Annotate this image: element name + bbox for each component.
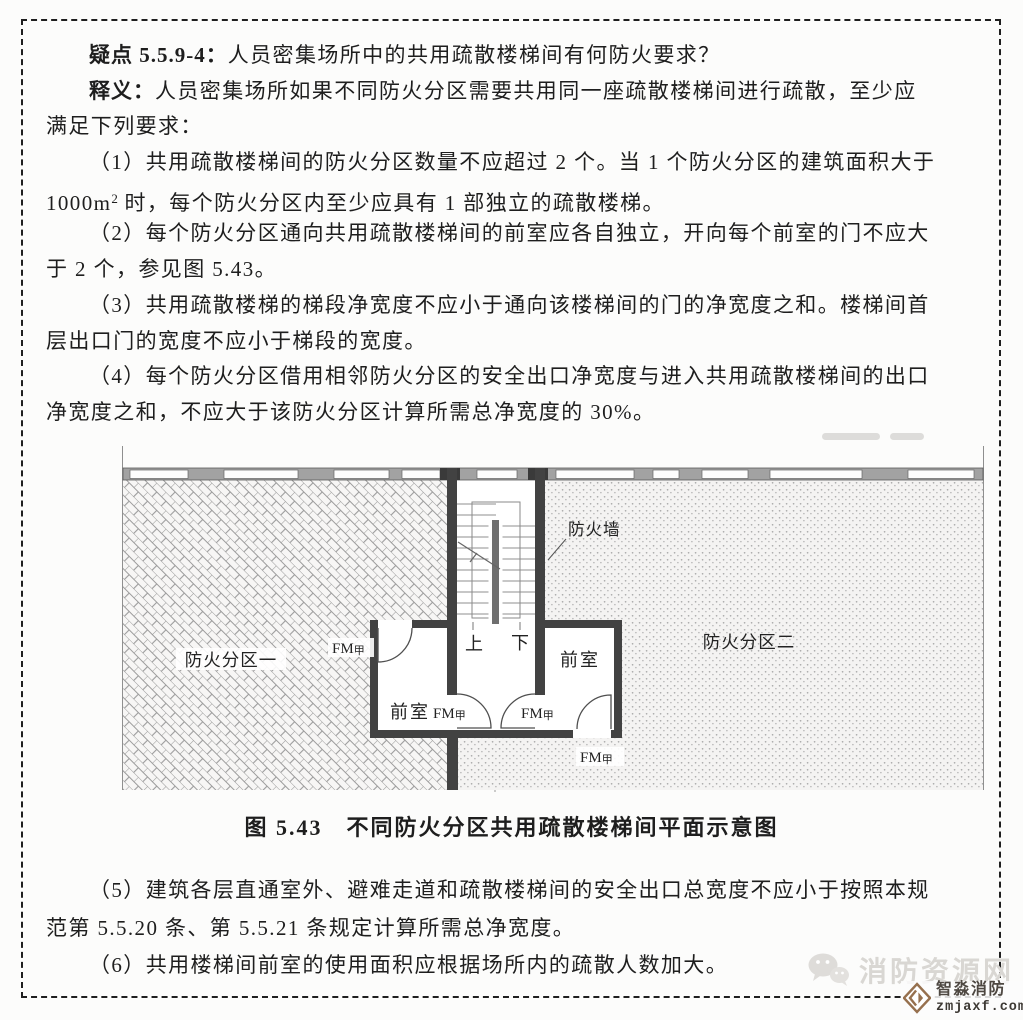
question-label: 疑点 5.5.9-4： (89, 43, 228, 67)
scan-artifact (822, 433, 952, 445)
item4-line-2: 净宽度之和，不应大于该防火分区计算所需总净宽度的 30%。 (46, 395, 982, 431)
scanned-document-page: 疑点 5.5.9-4：人员密集场所中的共用疏散楼梯间有何防火要求？ 释义：人员密… (0, 0, 1023, 1020)
brand-watermark: 智淼消防 zmjaxf.com (901, 981, 1023, 1016)
question-text: 人员密集场所中的共用疏散楼梯间有何防火要求？ (228, 43, 721, 67)
item2-line-2: 于 2 个，参见图 5.43。 (46, 252, 982, 288)
item1-line-1: （1）共用疏散楼梯间的防火分区数量不应超过 2 个。当 1 个防火分区的建筑面积… (46, 145, 982, 181)
firewall-label: 防火墙 (568, 520, 621, 539)
item3-line-2: 层出口门的宽度不应小于梯段的宽度。 (46, 324, 982, 360)
item1-line-2: 1000m2 时，每个防火分区内至少应具有 1 部独立的疏散楼梯。 (46, 181, 982, 217)
item5-line-1: （5）建筑各层直通室外、避难走道和疏散楼梯间的安全出口总宽度不应小于按照本规 (46, 872, 982, 910)
question-line: 疑点 5.5.9-4：人员密集场所中的共用疏散楼梯间有何防火要求？ (46, 38, 982, 74)
answer-line-1: 释义：人员密集场所如果不同防火分区需要共用同一座疏散楼梯间进行疏散，至少应 (46, 74, 982, 110)
brand-url: zmjaxf.com (936, 1001, 1023, 1015)
item1-area-value: 1000m (46, 191, 111, 215)
item3-line-1: （3）共用疏散楼梯的梯段净宽度不应小于通向该楼梯间的门的净宽度之和。楼梯间首 (46, 288, 982, 324)
answer-label: 释义： (89, 79, 155, 103)
stair-divider (492, 520, 499, 624)
zone1-label: 防火分区一 (185, 650, 278, 670)
answer-text-1: 人员密集场所如果不同防火分区需要共用同一座疏散楼梯间进行疏散，至少应 (155, 79, 917, 103)
exterior-wall-band (123, 468, 983, 480)
stair-down-label: 下 (511, 633, 529, 653)
answer-line-2: 满足下列要求： (46, 109, 982, 145)
item4-line-1: （4）每个防火分区借用相邻防火分区的安全出口净宽度与进入共用疏散楼梯间的出口 (46, 359, 982, 395)
zone2-label: 防火分区二 (703, 632, 796, 652)
brand-name: 智淼消防 (936, 982, 1023, 998)
item1-line-2-rest: 时，每个防火分区内至少应具有 1 部独立的疏散楼梯。 (118, 191, 665, 215)
figure-caption: 图 5.43 不同防火分区共用疏散楼梯间平面示意图 (0, 810, 1023, 842)
body-text-upper: 疑点 5.5.9-4：人员密集场所中的共用疏散楼梯间有何防火要求？ 释义：人员密… (46, 38, 982, 431)
wechat-icon (806, 951, 852, 989)
stair-up-label: 上 (465, 634, 483, 654)
anteroom-left-label: 前室 (390, 702, 430, 722)
brand-diamond-icon (903, 982, 931, 1014)
anteroom-right-label: 前室 (560, 650, 600, 670)
item2-line-1: （2）每个防火分区通向共用疏散楼梯间的前室应各自独立，开向每个前室的门不应大 (46, 216, 982, 252)
floor-plan-figure: 防火分区一 防火分区二 防火墙 前室 前室 上 下 FM甲 FM甲 FM甲 FM… (120, 446, 986, 792)
item5-line-2: 范第 5.5.20 条、第 5.5.21 条规定计算所需总净宽度。 (46, 910, 982, 948)
